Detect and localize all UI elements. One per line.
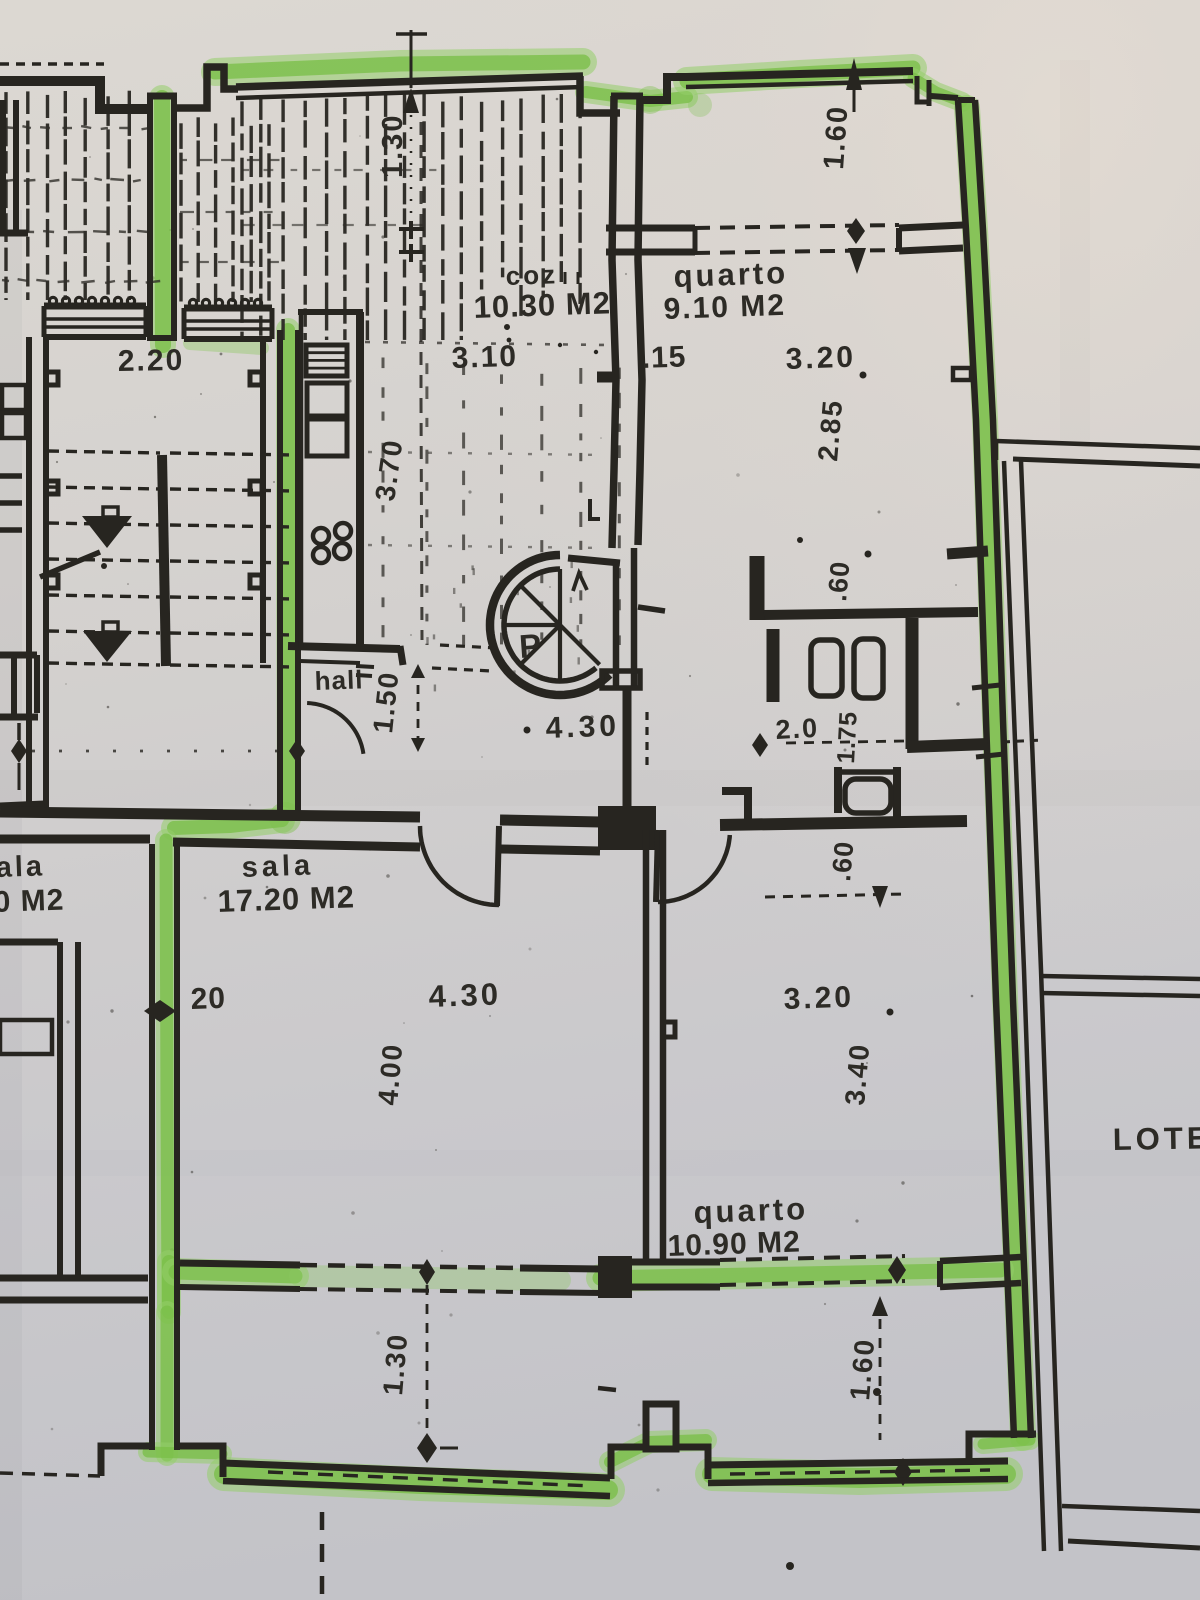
svg-text:1.60: 1.60 <box>818 104 854 171</box>
svg-text:.15: .15 <box>641 340 687 375</box>
svg-text:2.0: 2.0 <box>775 713 820 745</box>
svg-text:10.90 M2: 10.90 M2 <box>667 1225 801 1263</box>
svg-text:hall: hall <box>314 664 364 696</box>
svg-text:LOTE: LOTE <box>1113 1120 1200 1157</box>
svg-text:4.00: 4.00 <box>372 1042 408 1107</box>
svg-text:.60: .60 <box>822 560 855 603</box>
svg-text:coz: coz <box>505 259 558 291</box>
svg-text:10.30 M2: 10.30 M2 <box>473 285 611 325</box>
svg-text:3.40: 3.40 <box>839 1042 875 1107</box>
svg-text:1.50: 1.50 <box>367 669 404 734</box>
svg-text:P: P <box>518 627 543 665</box>
svg-text:2.20: 2.20 <box>118 344 185 378</box>
svg-text:ala: ala <box>0 850 46 884</box>
svg-text:1.75: 1.75 <box>832 710 863 764</box>
svg-text:3.10: 3.10 <box>451 340 519 375</box>
svg-text:4.30: 4.30 <box>428 976 502 1014</box>
svg-text:17.20 M2: 17.20 M2 <box>217 879 355 919</box>
svg-text:2.85: 2.85 <box>812 398 848 463</box>
svg-text:1.30: 1.30 <box>377 114 409 178</box>
svg-text:.60: .60 <box>826 840 859 883</box>
svg-text:9.10 M2: 9.10 M2 <box>663 289 786 326</box>
svg-text:3.20: 3.20 <box>785 341 856 376</box>
svg-text:4.30: 4.30 <box>545 709 620 745</box>
svg-text:1.30: 1.30 <box>377 1332 413 1397</box>
svg-text:quarto: quarto <box>693 1191 809 1230</box>
svg-text:0 M2: 0 M2 <box>0 884 65 919</box>
svg-text:20: 20 <box>190 982 227 1016</box>
svg-text:3.20: 3.20 <box>783 981 854 1016</box>
svg-text:quarto: quarto <box>673 255 789 294</box>
svg-text:sala: sala <box>241 849 315 884</box>
